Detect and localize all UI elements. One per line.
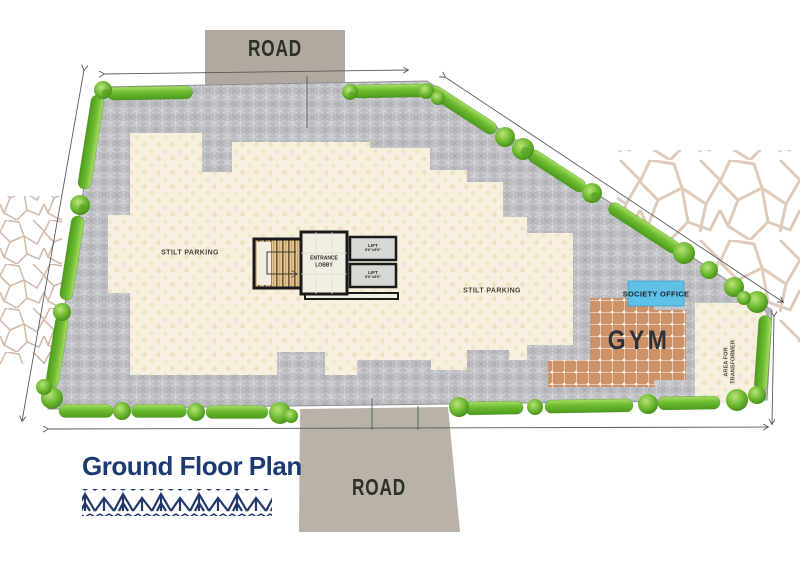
- ground-floor-plan: ROAD ROAD STILT PARKING STILT PARKING EN…: [0, 0, 800, 562]
- stair-landing: [257, 242, 271, 285]
- stilt-parking-right-label: STILT PARKING: [460, 286, 524, 295]
- page-title: Ground Floor Plan: [82, 451, 302, 482]
- transformer-area-label: AREA FOR TRANSFORMER: [724, 332, 739, 392]
- entrance-lobby-label: ENTRANCE LOBBY: [304, 256, 344, 269]
- society-office-label: SOCIETY OFFICE: [623, 290, 690, 299]
- road-bottom-area: [299, 407, 460, 532]
- lift-bottom-size: 5'0"x5'0": [350, 275, 396, 279]
- gym-label: GYM: [608, 324, 670, 356]
- stilt-parking-left-label: STILT PARKING: [158, 248, 222, 257]
- lift-bottom-label: LIFT 5'0"x5'0": [350, 270, 396, 280]
- lift-top-label: LIFT 5'0"x5'0": [350, 243, 396, 253]
- title-decoration: [82, 489, 272, 516]
- road-bottom-label: ROAD: [352, 474, 406, 502]
- lift-top-size: 5'0"x5'0": [350, 248, 396, 252]
- road-top-label: ROAD: [248, 35, 302, 63]
